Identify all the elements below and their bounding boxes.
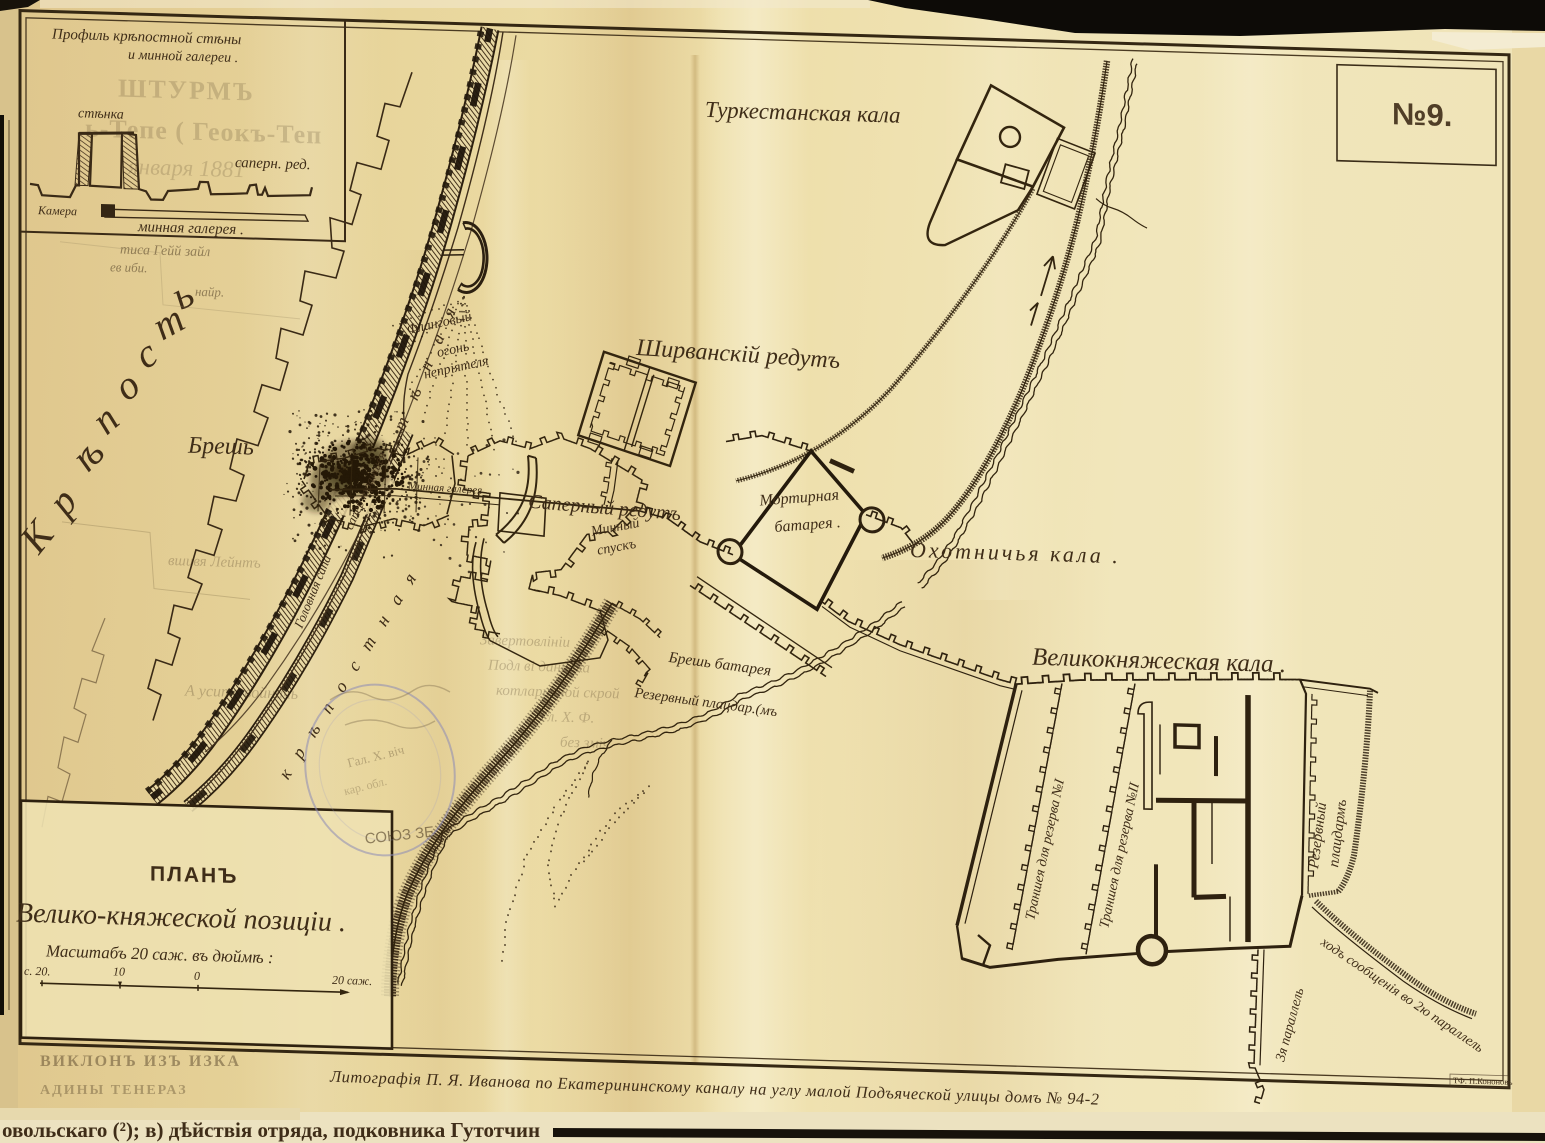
svg-text:Камера: Камера [37, 203, 77, 218]
svg-text:ев иби.: ев иби. [110, 259, 147, 275]
svg-text:ПЛАНЪ: ПЛАНЪ [150, 862, 238, 888]
svg-text:ТФ. П.Кононовъ: ТФ. П.Кононовъ [1453, 1075, 1513, 1087]
svg-text:стѣнка: стѣнка [78, 106, 124, 122]
svg-text:Гл. Х. Ф.: Гл. Х. Ф. [539, 709, 594, 727]
svg-text:с. 20.: с. 20. [24, 964, 50, 979]
svg-text:января 1881: января 1881 [127, 154, 245, 182]
svg-text:10: 10 [113, 964, 125, 978]
svg-text:Брешь: Брешь [187, 433, 254, 461]
svg-text:Завертовлініи: Завертовлініи [480, 632, 570, 651]
svg-text:лл: лл [239, 741, 252, 756]
svg-text:без зміч: без зміч [560, 735, 610, 752]
svg-text:минная галерея .: минная галерея . [137, 219, 244, 238]
svg-text:20 саж.: 20 саж. [332, 973, 372, 988]
svg-text:А уситр войничь: А уситр войничь [184, 682, 298, 702]
svg-text:саперн. ред.: саперн. ред. [235, 155, 310, 173]
svg-text:вшивя Лейнтъ: вшивя Лейнтъ [168, 553, 261, 572]
svg-text:ВИКЛОНЪ ИЗЪ ИЗКА: ВИКЛОНЪ ИЗЪ ИЗКА [40, 1053, 241, 1070]
svg-text:ШТУРМЪ: ШТУРМЪ [118, 74, 255, 107]
svg-text:АДИНЫ ТЕНЕРАЗ: АДИНЫ ТЕНЕРАЗ [40, 1083, 188, 1098]
svg-text:Подл ві данника: Подл ві данника [487, 657, 590, 676]
svg-text:найр.: найр. [195, 284, 224, 300]
svg-text:овольскаго (²); в) дѣйствія от: овольскаго (²); в) дѣйствія отряда, подк… [2, 1118, 540, 1142]
svg-text:тиса Гейй зайл: тиса Гейй зайл [120, 243, 210, 261]
svg-text:0: 0 [194, 969, 200, 983]
svg-text:№9.: №9. [1392, 96, 1452, 133]
